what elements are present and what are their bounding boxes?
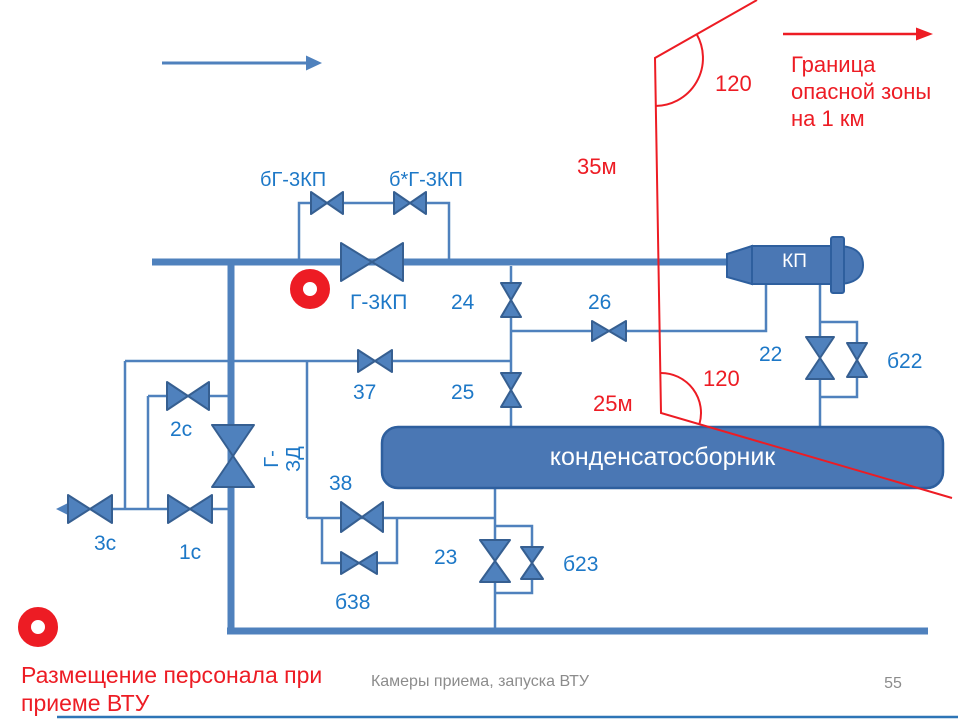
slide: бГ-3КП б*Г-3КП Г-3КП 24 26 37 25 22 б22 … <box>0 0 960 720</box>
bypass-b22-pipe <box>820 322 857 397</box>
boundary-arrow <box>783 28 933 41</box>
angle-arc-mid <box>661 373 701 424</box>
valve-b38 <box>341 552 377 574</box>
valve-25 <box>501 373 521 407</box>
valve-bstar-g3kp <box>394 192 426 214</box>
valve-b23 <box>521 547 543 579</box>
receiver-label: КП <box>752 252 837 272</box>
angle-value-mid: 120 <box>703 367 740 390</box>
valve-22 <box>806 337 834 379</box>
valve-2s <box>167 382 209 410</box>
valve-gzd <box>212 425 254 487</box>
condensate-collector-label: конденсатосборник <box>382 444 943 470</box>
page-number: 55 <box>868 676 918 693</box>
valve-label-b38: б38 <box>335 592 370 614</box>
valve-24 <box>501 283 521 317</box>
valve-label-24: 24 <box>451 292 474 314</box>
bypass-b38-pipe <box>322 518 397 563</box>
personnel-marker-1 <box>297 276 324 303</box>
valve-label-23: 23 <box>434 547 457 569</box>
valve-label-25: 25 <box>451 382 474 404</box>
valve-3s <box>68 495 112 523</box>
footer-caption: Камеры приема, запуска ВТУ <box>0 674 960 691</box>
valve-label-b23: б23 <box>563 554 598 576</box>
distance-35m-label: 35м <box>577 155 617 178</box>
valve-26 <box>592 321 626 341</box>
valve-label-gzd: Г- ЗД <box>261 434 305 484</box>
valve-label-bg3kp: бГ-3КП <box>260 170 326 191</box>
valve-label-b22: б22 <box>887 351 922 373</box>
valve-label-37: 37 <box>353 382 376 404</box>
valve-label-bstar-g3kp: б*Г-3КП <box>389 170 463 191</box>
boundary-note: Граница опасной зоны на 1 км <box>791 51 956 132</box>
valve-label-2s: 2с <box>170 419 192 441</box>
personnel-marker-2 <box>25 614 52 641</box>
valve-label-1s: 1с <box>179 542 201 564</box>
valve-label-26: 26 <box>588 292 611 314</box>
valve-label-g3kp: Г-3КП <box>350 292 407 314</box>
valve-38 <box>341 502 383 532</box>
valve-b22 <box>847 343 867 377</box>
valve-23 <box>480 540 510 582</box>
flow-direction-arrow <box>162 56 322 71</box>
drain-arrow-3s <box>56 503 68 515</box>
valve-label-38: 38 <box>329 473 352 495</box>
valve-label-22: 22 <box>759 344 782 366</box>
valve-g3kp <box>341 243 403 281</box>
valve-label-gzd-line2: ЗД <box>283 434 305 484</box>
angle-value-top: 120 <box>715 72 752 95</box>
valve-label-3s: 3с <box>94 533 116 555</box>
valve-1s <box>168 495 212 523</box>
valve-37 <box>358 350 392 372</box>
distance-25m-label: 25м <box>593 392 633 415</box>
valve-label-gzd-line1: Г- <box>261 434 283 484</box>
valve-bg3kp <box>311 192 343 214</box>
receiver-nose <box>727 246 752 284</box>
pipe-26-line <box>511 285 766 331</box>
